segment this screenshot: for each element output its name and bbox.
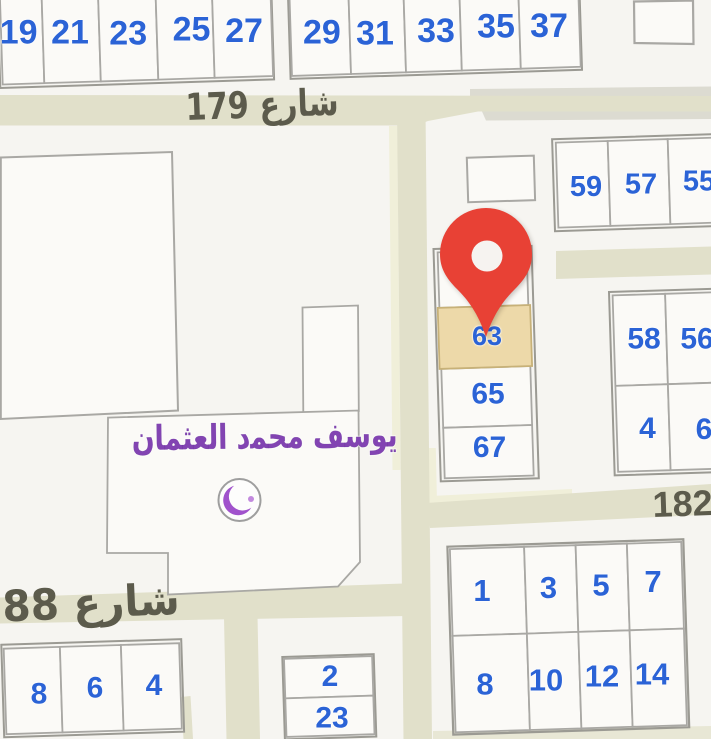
svg-text:2: 2 [322,660,339,693]
svg-text:33: 33 [417,12,455,50]
svg-text:25: 25 [173,10,211,48]
svg-text:8: 8 [31,677,48,710]
svg-text:7: 7 [644,564,661,599]
svg-text:23: 23 [315,701,348,734]
svg-text:59: 59 [570,171,602,203]
svg-text:58: 58 [627,322,660,355]
svg-text:182: 182 [652,482,711,525]
svg-text:6: 6 [87,671,104,704]
svg-text:56: 56 [680,322,711,355]
svg-text:23: 23 [109,14,147,52]
svg-text:4: 4 [639,412,656,445]
svg-text:31: 31 [356,15,394,53]
svg-text:29: 29 [303,14,341,52]
svg-text:37: 37 [530,7,568,45]
svg-text:4: 4 [146,669,163,702]
svg-text:67: 67 [473,431,506,464]
svg-text:19: 19 [0,13,38,51]
svg-text:5: 5 [592,567,609,602]
svg-text:8: 8 [476,666,493,701]
svg-text:57: 57 [625,169,657,201]
svg-text:55: 55 [683,166,711,198]
svg-text:1: 1 [473,573,490,608]
svg-text:27: 27 [225,12,263,50]
svg-text:12: 12 [585,658,619,693]
svg-text:35: 35 [477,8,515,46]
svg-text:6: 6 [696,413,711,446]
svg-text:3: 3 [540,570,557,605]
svg-text:14: 14 [635,656,670,691]
svg-text:21: 21 [51,14,89,52]
svg-text:65: 65 [471,377,504,410]
svg-text:10: 10 [529,662,563,697]
